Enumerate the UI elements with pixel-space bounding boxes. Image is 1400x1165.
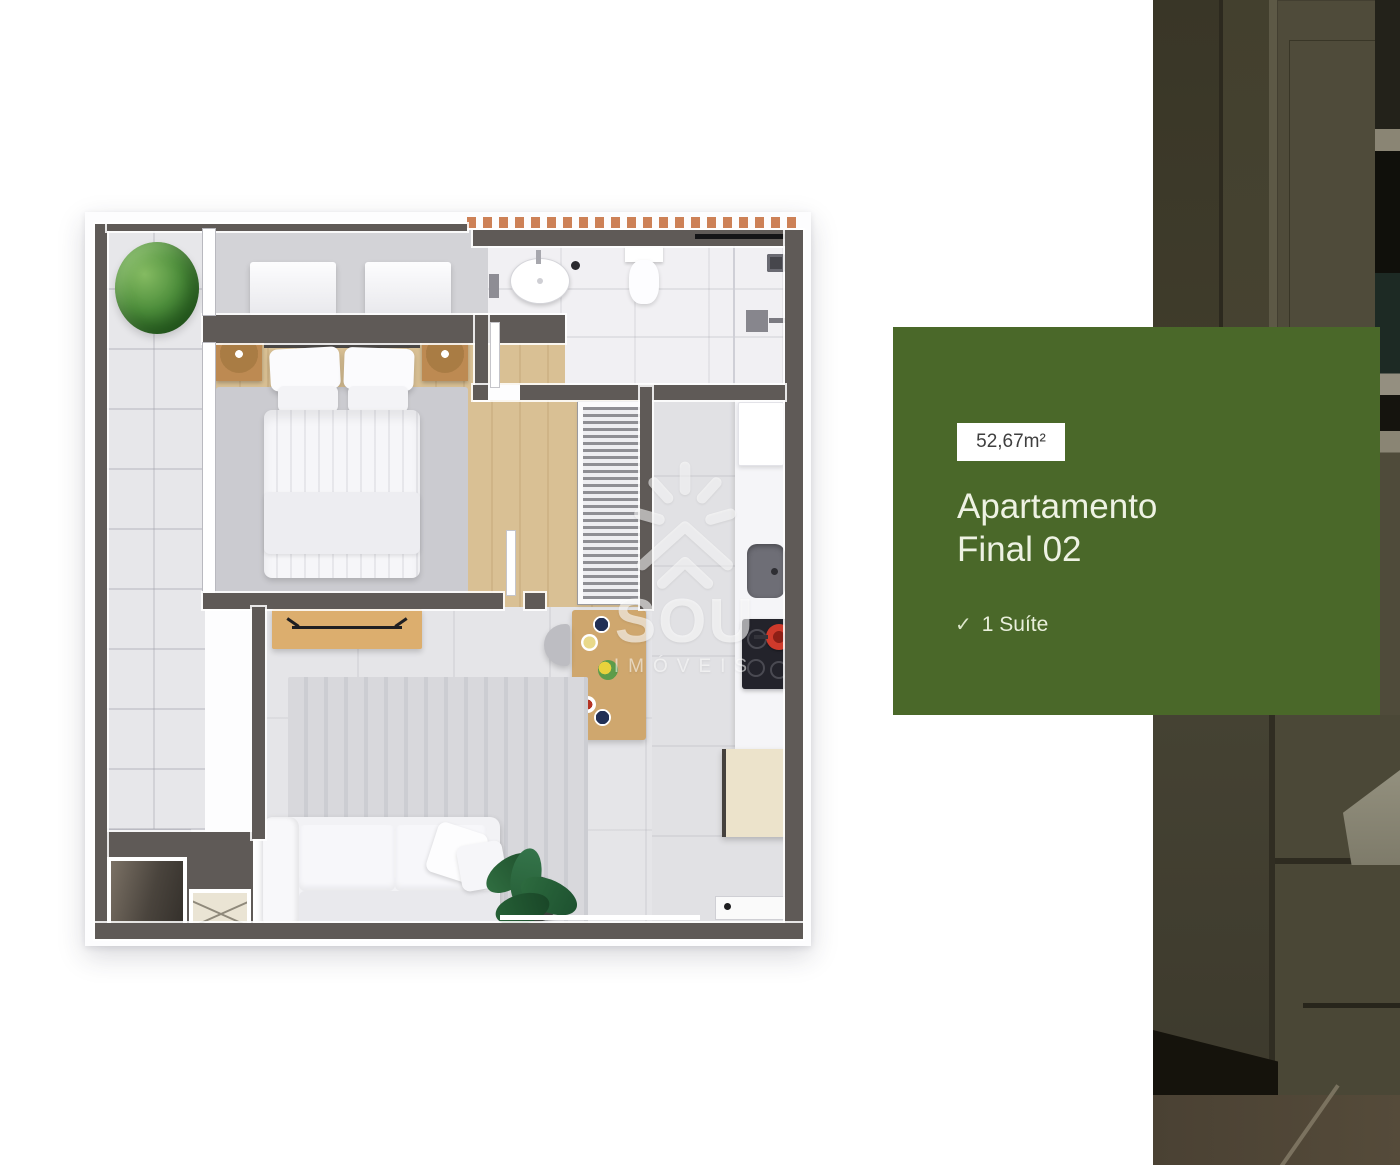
wall-balcony-divider-lower xyxy=(203,343,215,593)
toilet xyxy=(625,244,663,306)
sofa-back xyxy=(299,891,500,925)
bed-foot-throw xyxy=(264,492,420,554)
sideboard xyxy=(272,609,422,649)
page: SOU IMÓVEIS 52,67m² Apartamento Final 02… xyxy=(0,0,1400,1165)
wall-left xyxy=(95,224,107,939)
sofa xyxy=(263,817,500,929)
door-handle xyxy=(724,903,731,910)
floorplan-image[interactable]: SOU IMÓVEIS xyxy=(85,212,811,946)
unit-title-line2: Final 02 xyxy=(957,528,1157,571)
area-badge: 52,67m² xyxy=(957,423,1065,461)
ac-unit-2 xyxy=(365,262,451,316)
wall-hall xyxy=(252,607,265,839)
shower-mat xyxy=(746,310,768,332)
sofa-seat-1 xyxy=(299,825,395,891)
balcony-tree xyxy=(115,242,199,334)
toilet-bowl xyxy=(629,260,659,304)
wall-balcony-divider xyxy=(203,229,215,315)
watermark-tagline: IMÓVEIS xyxy=(590,656,780,678)
wall-bedroom-ledge xyxy=(203,315,565,343)
bathroom-sink xyxy=(510,258,570,304)
bed-pillow-2 xyxy=(343,347,414,391)
shower-fixture xyxy=(767,254,785,272)
sink-drain xyxy=(537,278,543,284)
top-window xyxy=(695,234,799,239)
bed-pillow-small-1 xyxy=(278,386,338,412)
shower-glass-line xyxy=(733,242,735,387)
wall-bottom xyxy=(95,923,803,939)
wall-bedroom-south xyxy=(203,593,503,609)
plate-navy-2 xyxy=(594,709,611,726)
sofa-armrest xyxy=(263,817,299,929)
bed xyxy=(264,340,420,578)
bed-pillow-1 xyxy=(269,346,341,392)
unit-title-line1: Apartamento xyxy=(957,485,1157,528)
drawer-seam-2 xyxy=(1303,1003,1400,1008)
roof-tile-edge xyxy=(467,217,803,228)
bottom-window-sill xyxy=(500,915,700,920)
feature-suite-label: 1 Suíte xyxy=(982,613,1049,637)
bathroom-drain-dot xyxy=(571,261,580,270)
watermark-brand: SOU xyxy=(590,592,780,652)
wall-bedroom-south-stub xyxy=(525,593,545,609)
check-icon: ✓ xyxy=(955,612,972,637)
washing-cabinet xyxy=(722,749,794,837)
sideboard-decor xyxy=(292,626,402,629)
watermark: SOU IMÓVEIS xyxy=(590,457,780,692)
kitchen-floor-strip xyxy=(1153,1095,1400,1165)
bed-pillow-small-2 xyxy=(348,386,408,412)
unit-info-card: 52,67m² Apartamento Final 02 ✓ 1 Suíte xyxy=(893,327,1380,715)
feature-suite: ✓ 1 Suíte xyxy=(955,612,1048,637)
watermark-logo-icon xyxy=(595,457,775,592)
wall-right xyxy=(785,230,803,939)
bath-door-leaf xyxy=(490,322,500,388)
unit-title: Apartamento Final 02 xyxy=(957,485,1157,571)
sink-faucet xyxy=(536,250,541,264)
lower-cabinet-bottom xyxy=(1275,864,1400,1104)
bath-accessory xyxy=(489,274,499,298)
wall-top-balcony xyxy=(107,224,467,231)
ac-unit-1 xyxy=(250,262,336,316)
bedroom-door-leaf xyxy=(506,530,516,596)
area-badge-label: 52,67m² xyxy=(976,431,1046,453)
